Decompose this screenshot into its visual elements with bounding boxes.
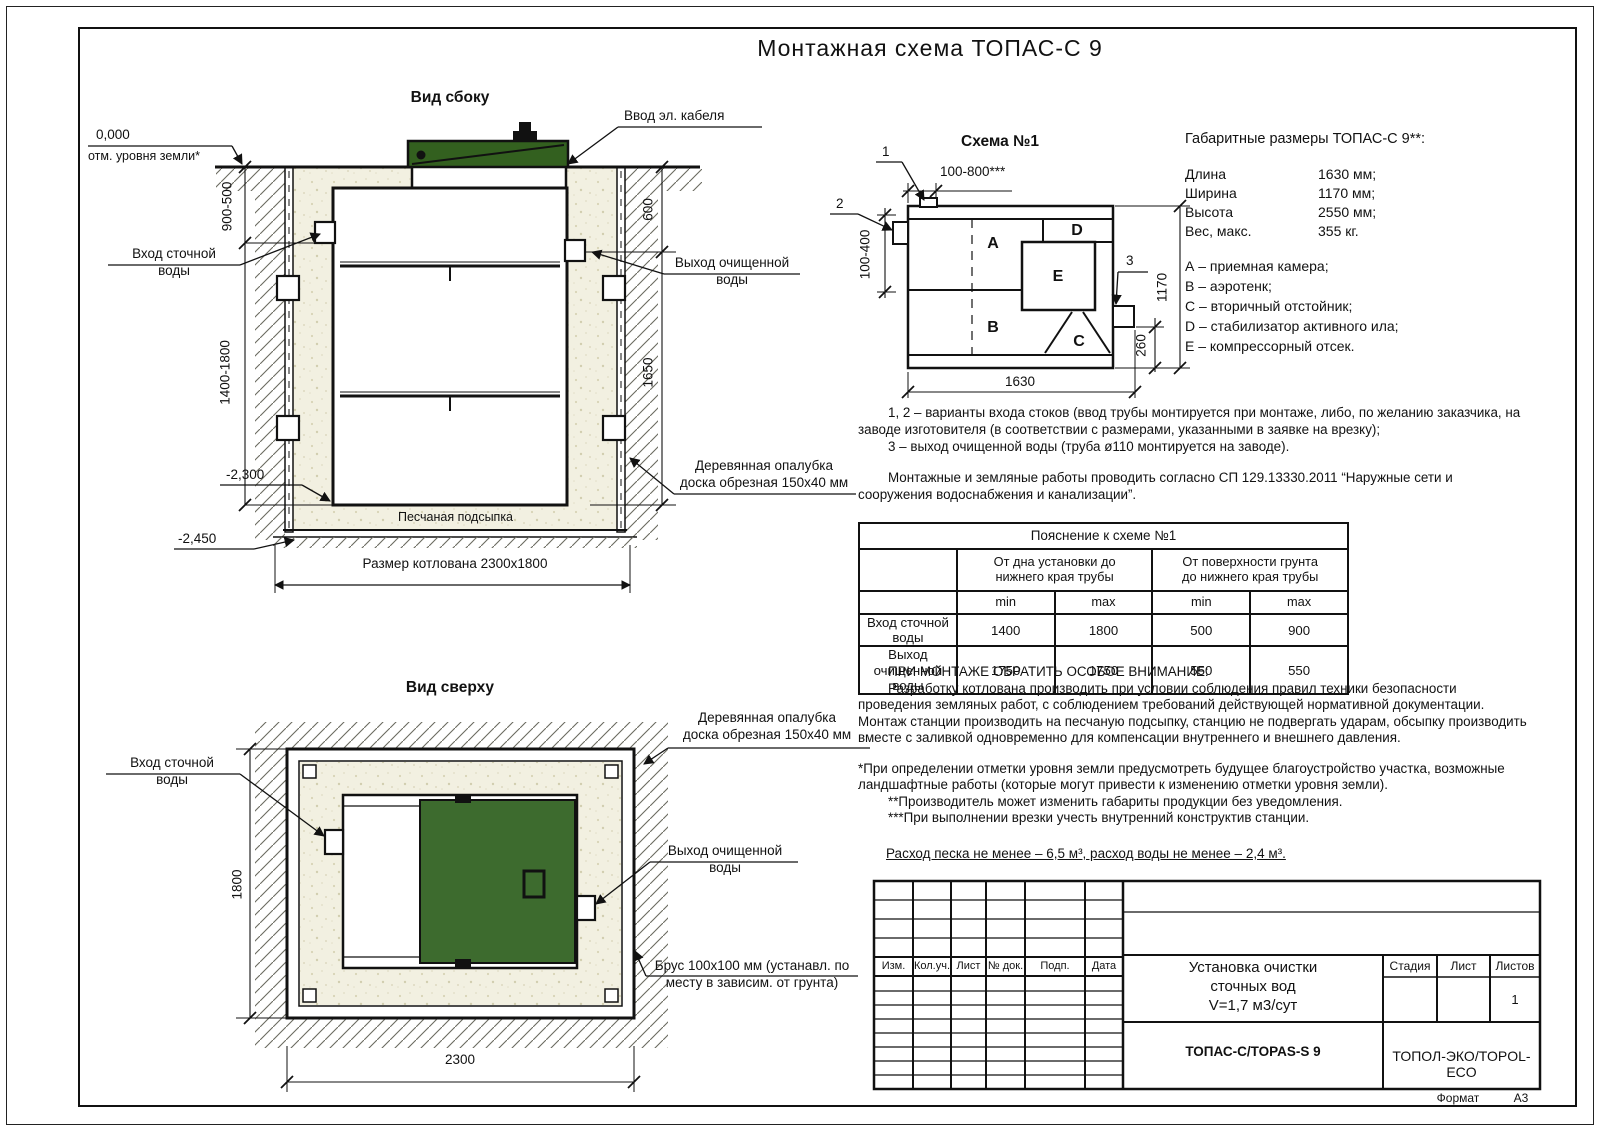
legend-b: В – аэротенк; bbox=[1185, 278, 1272, 296]
level-2450: -2,450 bbox=[178, 531, 216, 548]
stamp-col-doc: № док. bbox=[986, 960, 1025, 972]
stamp-sheet-label: Лист bbox=[1437, 959, 1490, 973]
dim-600: 600 bbox=[641, 179, 658, 239]
overall-row-name: Ширина bbox=[1185, 185, 1237, 203]
table-cell: 900 bbox=[1250, 614, 1348, 646]
table-cell: 500 bbox=[1152, 614, 1250, 646]
dim-1630: 1630 bbox=[985, 374, 1055, 391]
overall-row-value: 1630 мм; bbox=[1318, 166, 1376, 184]
callout-2: 2 bbox=[836, 196, 844, 213]
drawing-sheet: Монтажная схема ТОПАС-С 9 Вид сбоку 0,00… bbox=[0, 0, 1600, 1131]
dim-1170: 1170 bbox=[1155, 257, 1172, 317]
stamp-col-list: Лист bbox=[951, 960, 986, 972]
top-inlet-label: Вход сточной воды bbox=[106, 755, 238, 789]
callout-3: 3 bbox=[1126, 253, 1134, 270]
dim-100-400: 100-400 bbox=[858, 214, 875, 294]
cable-entry-label: Ввод эл. кабеля bbox=[624, 108, 724, 125]
attention-star3: ***При выполнении врезки учесть внутренн… bbox=[858, 810, 1530, 827]
side-outlet-label: Выход очищенной воды bbox=[664, 255, 800, 289]
dim-900-500: 900-500 bbox=[220, 166, 237, 246]
overall-row-name: Высота bbox=[1185, 204, 1233, 222]
overall-row-value: 355 кг. bbox=[1318, 223, 1359, 241]
table-group1: От дна установки до нижнего края трубы bbox=[957, 549, 1153, 591]
stamp-stage-label: Стадия bbox=[1383, 959, 1437, 973]
schema1-title: Схема №1 bbox=[935, 132, 1065, 151]
dim-260: 260 bbox=[1134, 320, 1151, 370]
overall-row-value: 1170 мм; bbox=[1318, 185, 1375, 203]
dim-1400-1800: 1400-1800 bbox=[218, 322, 235, 422]
stamp-sheets-value: 1 bbox=[1490, 992, 1540, 1007]
note-variants: 1, 2 – варианты входа стоков (ввод трубы… bbox=[858, 404, 1526, 438]
table-subheader: min bbox=[957, 591, 1055, 614]
zero-level-value: 0,000 bbox=[96, 127, 130, 144]
note-sp: Монтажные и земляные работы проводить со… bbox=[858, 469, 1526, 503]
dim-2300: 2300 bbox=[430, 1052, 490, 1069]
timber-label: Брус 100х100 мм (устанавл. по месту в за… bbox=[646, 958, 858, 992]
stamp-company: ТОПОЛ-ЭКО/TOPOL-ECO bbox=[1383, 1048, 1540, 1080]
attention-p1: Разработку котлована производить при усл… bbox=[858, 681, 1530, 747]
table-subheader: min bbox=[1152, 591, 1250, 614]
section-d: D bbox=[1066, 221, 1088, 241]
stamp-sheets-label: Листов bbox=[1490, 959, 1540, 973]
pit-size-label: Размер котлована 2300х1800 bbox=[330, 556, 580, 573]
attention-star1: *При определении отметки уровня земли пр… bbox=[858, 761, 1530, 794]
table-subheader: max bbox=[1250, 591, 1348, 614]
table-row-name: Вход сточной воды bbox=[859, 614, 957, 646]
dim-100-800: 100-800*** bbox=[940, 164, 1005, 181]
top-outlet-label: Выход очищенной воды bbox=[652, 843, 798, 877]
overall-row-name: Длина bbox=[1185, 166, 1226, 184]
table-cell bbox=[859, 591, 957, 614]
section-b: B bbox=[982, 318, 1004, 338]
stamp-col-data: Дата bbox=[1085, 960, 1123, 972]
format-value: А3 bbox=[1506, 1091, 1536, 1105]
consumption-note: Расход песка не менее – 6,5 м³, расход в… bbox=[886, 846, 1286, 863]
side-view-title: Вид сбоку bbox=[370, 88, 530, 107]
stamp-col-podp: Подп. bbox=[1025, 960, 1085, 972]
section-e: E bbox=[1047, 267, 1069, 287]
ground-level-label: отм. уровня земли* bbox=[88, 149, 200, 165]
dim-1800: 1800 bbox=[230, 854, 247, 914]
overall-row-value: 2550 мм; bbox=[1318, 204, 1376, 222]
attention-heading: ПРИ МОНТАЖЕ ОБРАТИТЬ ОСОБОЕ ВНИМАНИЕ: bbox=[858, 664, 1530, 681]
legend-a: А – приемная камера; bbox=[1185, 258, 1329, 276]
stamp-col-izm: Изм. bbox=[874, 960, 913, 972]
overall-row-name: Вес, макс. bbox=[1185, 223, 1252, 241]
sand-bed-label: Песчаная подсыпка bbox=[388, 510, 523, 526]
callout-1: 1 bbox=[882, 144, 890, 161]
stamp-col-kol: Кол.уч. bbox=[913, 960, 951, 972]
attention-block: ПРИ МОНТАЖЕ ОБРАТИТЬ ОСОБОЕ ВНИМАНИЕ: Ра… bbox=[858, 664, 1530, 827]
stamp-doc-title: Установка очистки сточных вод V=1,7 м3/с… bbox=[1123, 958, 1383, 1015]
page-title: Монтажная схема ТОПАС-С 9 bbox=[620, 34, 1240, 63]
overall-title: Габаритные размеры ТОПАС-С 9**: bbox=[1185, 130, 1425, 148]
level-2300: -2,300 bbox=[226, 467, 264, 484]
legend-c: С – вторичный отстойник; bbox=[1185, 298, 1352, 316]
table-cell: 1800 bbox=[1055, 614, 1153, 646]
dim-1650: 1650 bbox=[641, 342, 658, 402]
legend-e: Е – компрессорный отсек. bbox=[1185, 338, 1355, 356]
table-corner-cell bbox=[859, 549, 957, 591]
top-formwork-label: Деревянная опалубка доска обрезная 150х4… bbox=[664, 710, 870, 744]
section-a: A bbox=[982, 234, 1004, 254]
side-formwork-label: Деревянная опалубка доска обрезная 150х4… bbox=[672, 458, 856, 492]
note-outlet: 3 – выход очищенной воды (труба ø110 мон… bbox=[858, 438, 1526, 455]
table-title: Пояснение к схеме №1 bbox=[859, 523, 1348, 549]
side-inlet-label: Вход сточной воды bbox=[108, 246, 240, 280]
table-group2: От поверхности грунта до нижнего края тр… bbox=[1152, 549, 1348, 591]
attention-star2: **Производитель может изменить габариты … bbox=[858, 794, 1530, 811]
section-c: C bbox=[1068, 332, 1090, 352]
stamp-model: ТОПАС-С/TOPAS-S 9 bbox=[1123, 1044, 1383, 1059]
top-view-title: Вид сверху bbox=[370, 678, 530, 697]
legend-d: D – стабилизатор активного ила; bbox=[1185, 318, 1399, 336]
table-cell: 1400 bbox=[957, 614, 1055, 646]
notes-block: 1, 2 – варианты входа стоков (ввод трубы… bbox=[858, 404, 1526, 503]
table-subheader: max bbox=[1055, 591, 1153, 614]
format-label: Формат bbox=[1428, 1091, 1488, 1105]
